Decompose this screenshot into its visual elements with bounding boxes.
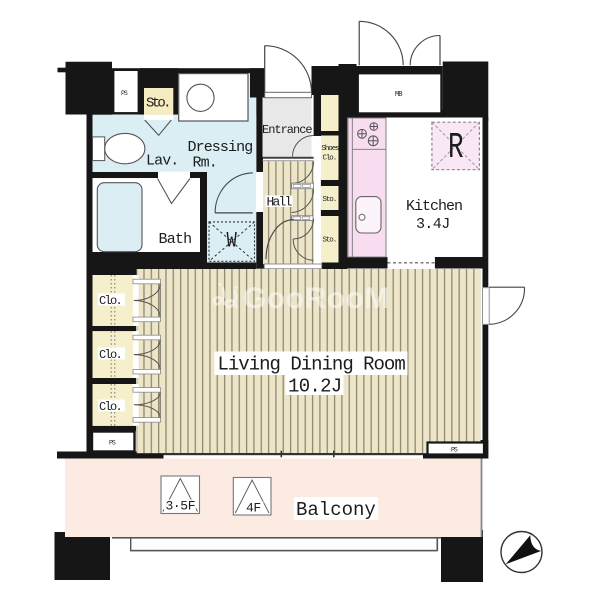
svg-text:Living Dining Room: Living Dining Room [218,354,406,376]
svg-text:Entrance: Entrance [262,123,312,137]
svg-text:Sto.: Sto. [323,237,337,245]
svg-text:Balcony: Balcony [296,499,376,521]
svg-text:Sto.: Sto. [146,96,169,112]
svg-text:Clo.: Clo. [99,294,121,308]
svg-text:10.2J: 10.2J [288,376,342,398]
svg-text:GooRooM: GooRooM [243,282,390,315]
svg-text:3.4J: 3.4J [416,216,450,233]
svg-text:Lav.: Lav. [146,153,178,170]
svg-text:Clo.: Clo. [323,155,337,163]
svg-text:Sto.: Sto. [323,196,337,204]
svg-text:Bath: Bath [159,231,192,248]
svg-text:W: W [227,229,237,254]
svg-text:Clo.: Clo. [99,400,121,414]
svg-text:Clo.: Clo. [99,348,121,362]
svg-text:4F: 4F [246,501,261,516]
svg-text:R: R [448,128,464,168]
svg-text:3·5F: 3·5F [166,499,196,514]
svg-text:Rm.: Rm. [193,155,217,172]
svg-text:Hall: Hall [267,195,293,210]
svg-text:Dressing: Dressing [188,139,253,156]
svg-text:MB: MB [395,91,402,99]
svg-text:Shoes: Shoes [322,145,340,153]
svg-text:Kitchen: Kitchen [406,198,462,215]
